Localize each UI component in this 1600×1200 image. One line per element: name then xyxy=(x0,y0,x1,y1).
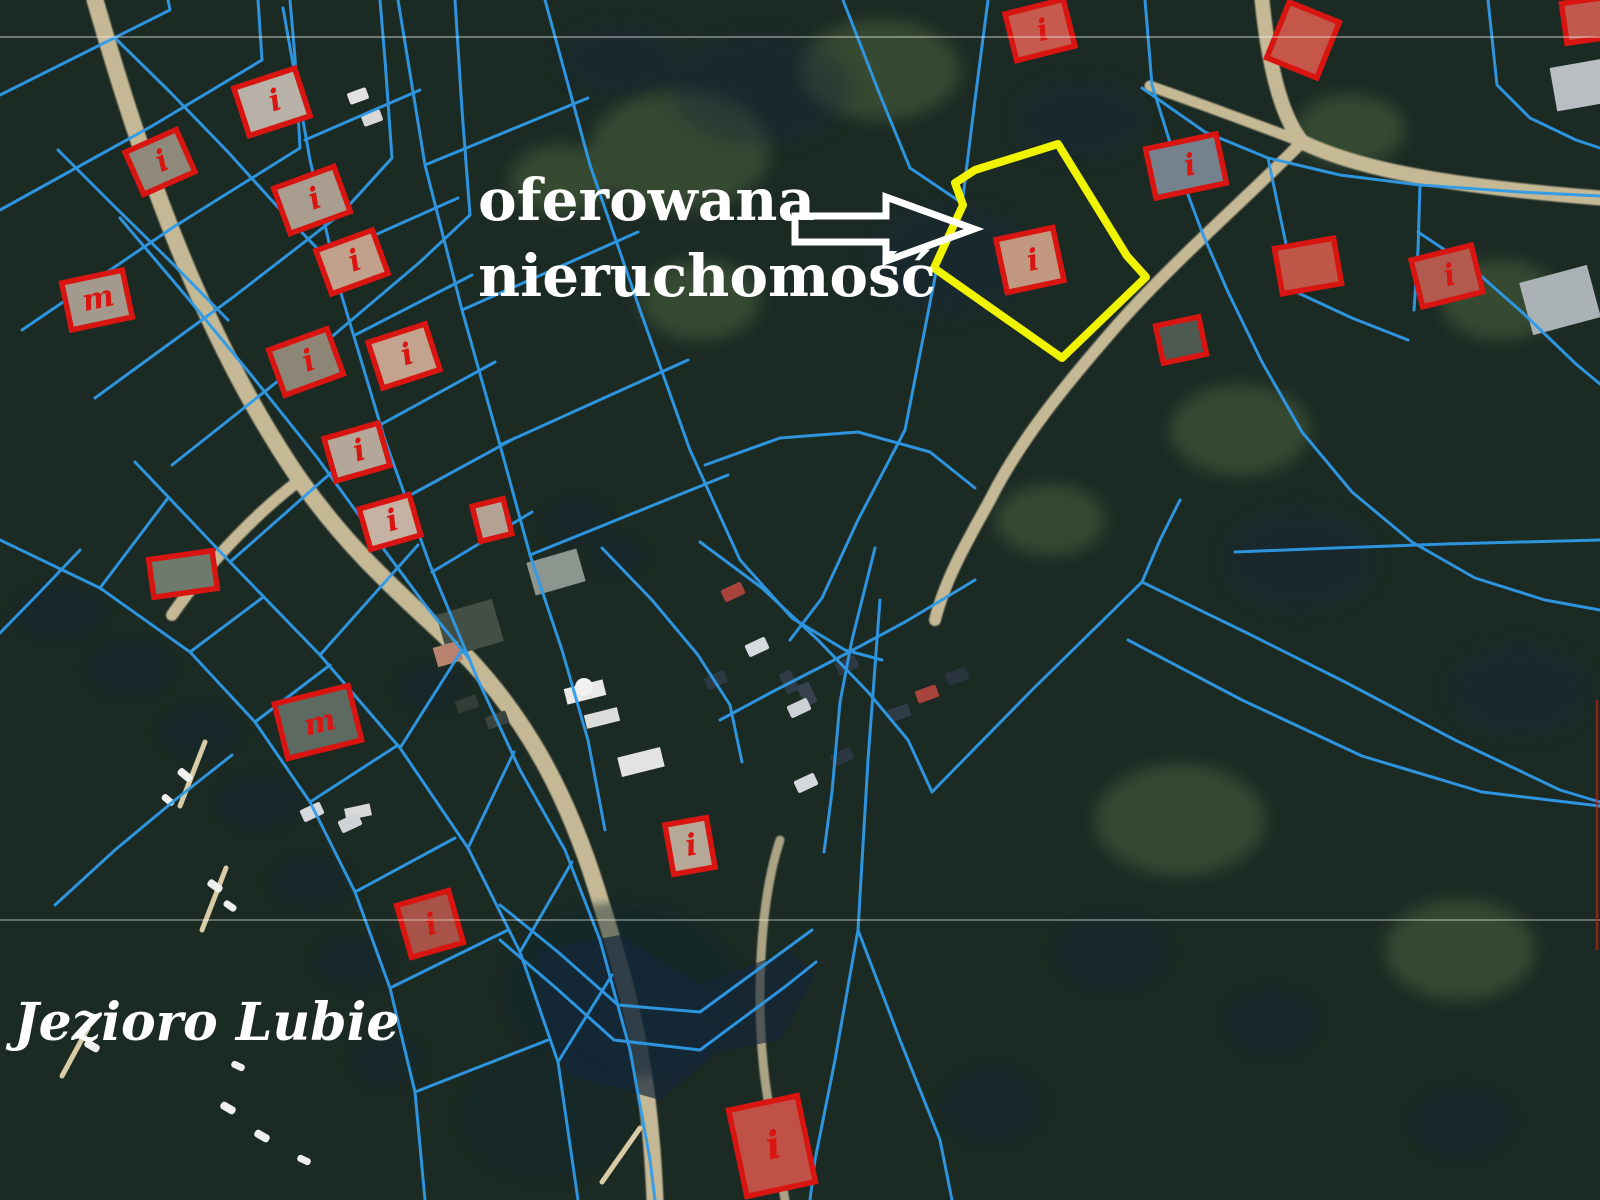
building-outline xyxy=(149,551,218,598)
lake-label: Jezioro Lubie xyxy=(5,992,399,1053)
building-outline xyxy=(1274,238,1341,294)
annotation-line2: nieruchomość xyxy=(478,242,936,310)
building-outline xyxy=(1156,317,1207,363)
aerial-map: i i i m i i i i i m i i i i i i i oferow… xyxy=(0,0,1600,1200)
annotation-line1: oferowana xyxy=(478,166,815,234)
building-outline xyxy=(472,499,512,542)
